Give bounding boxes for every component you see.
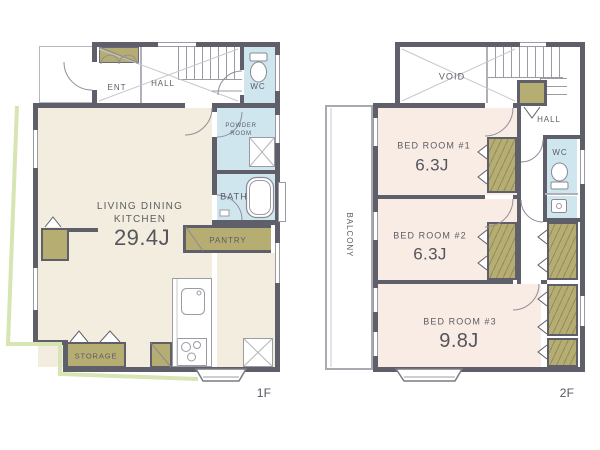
ldk-label-line2: KITCHEN bbox=[114, 215, 166, 225]
bedroom2-closet bbox=[487, 222, 517, 280]
window bbox=[275, 55, 280, 91]
shoe-cabinet bbox=[99, 47, 139, 63]
right-closet-1 bbox=[547, 222, 578, 280]
powder-room-label-line2: ROOM bbox=[230, 131, 252, 137]
wall bbox=[395, 42, 585, 47]
wall bbox=[92, 42, 97, 62]
floor2-label: 2F bbox=[560, 387, 574, 399]
bedroom2-size-label: 6.3J bbox=[413, 246, 447, 263]
wall bbox=[541, 280, 547, 284]
wall bbox=[373, 367, 585, 372]
bedroom3-size-label: 9.8J bbox=[439, 331, 478, 351]
wall bbox=[517, 103, 521, 284]
wall bbox=[373, 195, 485, 199]
bath-window bbox=[278, 182, 286, 222]
window bbox=[373, 332, 378, 356]
wall bbox=[373, 103, 485, 108]
window bbox=[373, 288, 378, 312]
bath-label: BATH bbox=[220, 193, 248, 202]
window bbox=[373, 118, 378, 146]
wc-basin-divider bbox=[545, 193, 578, 195]
window bbox=[275, 243, 280, 283]
window bbox=[580, 150, 585, 184]
ldk-label-line1: LIVING DINING bbox=[97, 202, 183, 212]
washbasin-floor bbox=[547, 196, 577, 218]
wc-label-1f: WC bbox=[250, 83, 265, 91]
wc-label-2f: WC bbox=[552, 149, 567, 157]
floor-plan-canvas: ENT HALL WC POWDER ROOM BATH LIVING DINI… bbox=[0, 0, 600, 450]
cabinet-stub-wall bbox=[68, 228, 98, 232]
wall bbox=[373, 280, 513, 284]
wall bbox=[395, 42, 400, 108]
balcony-label: BALCONY bbox=[345, 213, 353, 258]
wall bbox=[63, 367, 280, 372]
right-closet-2 bbox=[547, 284, 578, 336]
wall bbox=[33, 103, 185, 108]
wc-floor-1f bbox=[244, 47, 275, 103]
kitchen-side-floor bbox=[217, 253, 275, 367]
window bbox=[275, 115, 280, 143]
wall bbox=[543, 135, 580, 139]
hall-label-1f: HALL bbox=[151, 80, 175, 88]
wall bbox=[212, 103, 280, 108]
corridor-floor-2f bbox=[521, 135, 543, 284]
void-label: VOID bbox=[439, 73, 465, 82]
bedroom2-label: BED ROOM #2 bbox=[393, 232, 466, 241]
bedroom1-label: BED ROOM #1 bbox=[397, 142, 470, 151]
ldk-size-label: 29.4J bbox=[114, 227, 170, 249]
window bbox=[520, 42, 546, 47]
wall bbox=[212, 220, 280, 225]
wall bbox=[240, 42, 244, 70]
floor1-label: 1F bbox=[257, 387, 271, 399]
stairs-1f bbox=[178, 47, 242, 80]
window bbox=[33, 130, 38, 168]
void-stair-divider bbox=[486, 47, 488, 103]
ent-hall-partition bbox=[140, 47, 142, 103]
kitchen-counter bbox=[172, 278, 212, 367]
right-closet-3 bbox=[547, 338, 578, 367]
wall bbox=[212, 170, 280, 174]
kitchen-side-closet bbox=[150, 342, 172, 368]
powder-room-floor bbox=[217, 108, 275, 170]
stair-side-closet bbox=[517, 80, 547, 106]
wall bbox=[543, 218, 580, 222]
entrance-porch bbox=[39, 46, 92, 103]
bedroom1-size-label: 6.3J bbox=[415, 157, 449, 174]
living-wall-cabinet bbox=[41, 228, 69, 261]
stairs-2f-upper-run bbox=[487, 47, 563, 78]
window bbox=[580, 296, 585, 326]
bedroom1-closet bbox=[487, 137, 517, 193]
hall-label-2f: HALL bbox=[537, 116, 561, 124]
wall bbox=[212, 103, 217, 112]
wall bbox=[240, 95, 244, 103]
storage-label: STORAGE bbox=[75, 352, 118, 360]
window bbox=[33, 268, 38, 310]
window bbox=[158, 42, 196, 47]
powder-room-label-line1: POWDER bbox=[225, 123, 256, 129]
ent-label: ENT bbox=[108, 84, 127, 92]
bedroom3-label: BED ROOM #3 bbox=[423, 318, 496, 327]
wall bbox=[543, 135, 547, 222]
window bbox=[373, 212, 378, 240]
pantry-label: PANTRY bbox=[209, 237, 246, 245]
wall bbox=[212, 137, 217, 195]
